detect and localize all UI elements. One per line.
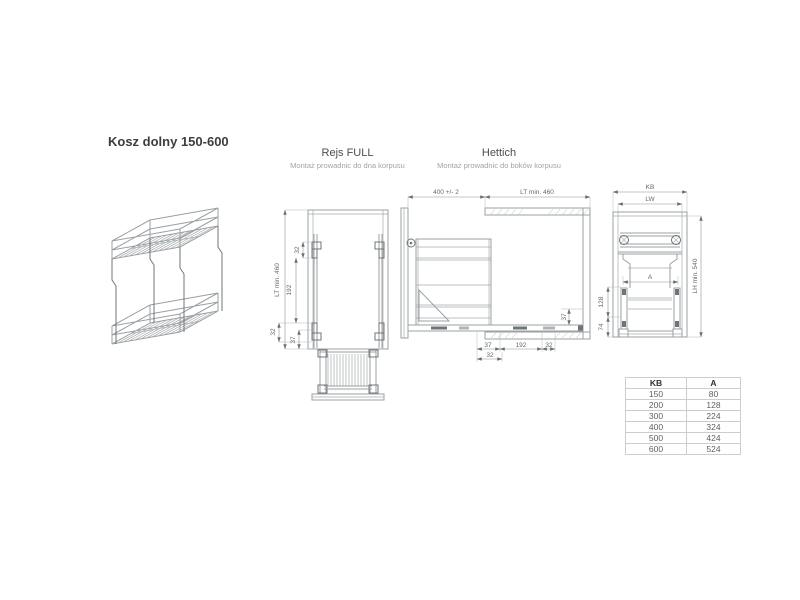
- table-header-kb: KB: [626, 378, 687, 389]
- cell-kb: 150: [626, 389, 687, 400]
- page-title: Kosz dolny 150-600: [108, 134, 229, 149]
- rejs-full-subtitle: Montaż prowadnic do dna korpusu: [270, 161, 425, 170]
- rejs-full-title: Rejs FULL: [270, 147, 425, 159]
- table-row: 400 324: [626, 422, 741, 433]
- table-row: 300 224: [626, 411, 741, 422]
- cell-kb: 600: [626, 444, 687, 455]
- cell-kb: 300: [626, 411, 687, 422]
- cabinet-front-drawing: KB LW A LH min. 540 128 74: [588, 176, 723, 366]
- table-header-a: A: [687, 378, 741, 389]
- hettich-header: Hettich Montaż prowadnic do boków korpus…: [425, 147, 573, 170]
- dim-32-bottom-label: 32: [270, 328, 277, 336]
- dim-192-label: 192: [286, 284, 293, 295]
- cell-a: 324: [687, 422, 741, 433]
- hettich-drawing: 400 +/- 2 LT min. 460 37 37 1: [393, 186, 598, 378]
- cell-a: 424: [687, 433, 741, 444]
- cell-a: 524: [687, 444, 741, 455]
- dim-37-right-label: 37: [561, 313, 568, 321]
- dim-lw-label: LW: [645, 196, 655, 203]
- hettich-title: Hettich: [425, 147, 573, 159]
- cell-kb: 400: [626, 422, 687, 433]
- table-header-row: KB A: [626, 378, 741, 389]
- dim-37-bottom-label: 37: [484, 342, 492, 349]
- dim-lh-label: LH min. 540: [692, 258, 699, 293]
- dim-74-label: 74: [598, 323, 605, 331]
- hettich-subtitle: Montaż prowadnic do boków korpusu: [425, 161, 573, 170]
- dim-32-bottom-label: 32: [545, 342, 553, 349]
- dim-kb-label: KB: [646, 184, 655, 191]
- cell-kb: 200: [626, 400, 687, 411]
- dim-a-label: A: [648, 274, 653, 281]
- catalog-page: Kosz dolny 150-600 Rejs FULL Montaż prow…: [0, 0, 800, 600]
- table-row: 500 424: [626, 433, 741, 444]
- table-row: 200 128: [626, 400, 741, 411]
- dim-37-bottom-label: 37: [290, 336, 297, 344]
- dim-400-label: 400 +/- 2: [433, 189, 459, 196]
- table-row: 600 524: [626, 444, 741, 455]
- table-row: 150 80: [626, 389, 741, 400]
- basket-isometric-drawing: [104, 196, 236, 360]
- cell-a: 80: [687, 389, 741, 400]
- cell-kb: 500: [626, 433, 687, 444]
- dim-lt460-label: LT min. 460: [520, 189, 554, 196]
- dim-128-label: 128: [598, 296, 605, 307]
- size-table: KB A 150 80 200 128 300 224 400 324 500 …: [625, 377, 741, 455]
- cell-a: 128: [687, 400, 741, 411]
- dim-192-bottom-label: 192: [516, 342, 527, 349]
- cell-a: 224: [687, 411, 741, 422]
- rejs-full-drawing: LT min. 460 32 192 32 37: [258, 190, 408, 412]
- dim-32-bottom2-label: 32: [486, 352, 494, 359]
- dim-32-top-label: 32: [294, 246, 301, 254]
- dim-lt-label: LT min. 460: [274, 263, 281, 297]
- rejs-full-header: Rejs FULL Montaż prowadnic do dna korpus…: [270, 147, 425, 170]
